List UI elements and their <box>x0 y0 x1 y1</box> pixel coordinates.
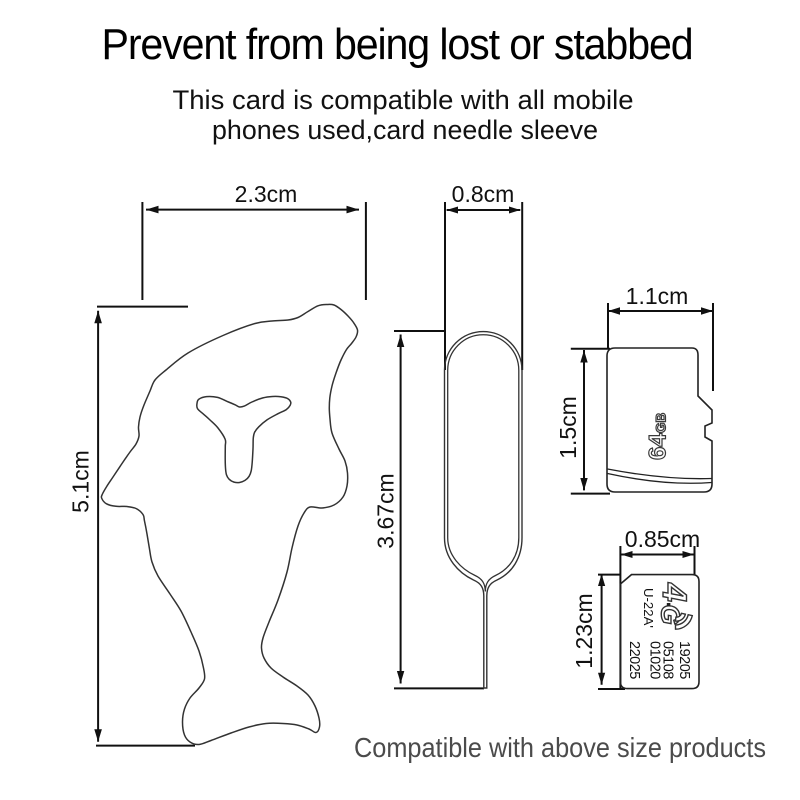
svg-text:0.85cm: 0.85cm <box>625 526 700 552</box>
svg-text:0.8cm: 0.8cm <box>452 181 515 207</box>
svg-text:Compatible with above size pro: Compatible with above size products <box>354 732 766 763</box>
svg-text:U-22A': U-22A' <box>641 588 656 628</box>
svg-text:22025: 22025 <box>626 641 642 679</box>
svg-text:This card is compatible with a: This card is compatible with all mobile <box>173 85 634 115</box>
svg-text:1.23cm: 1.23cm <box>571 593 597 668</box>
svg-text:3.67cm: 3.67cm <box>373 473 399 548</box>
svg-text:5.1cm: 5.1cm <box>68 450 94 513</box>
svg-text:64: 64 <box>645 433 672 460</box>
svg-text:phones used,card needle sleeve: phones used,card needle sleeve <box>212 115 598 145</box>
svg-text:01020: 01020 <box>647 641 663 679</box>
svg-text:19205: 19205 <box>676 641 692 679</box>
svg-text:4: 4 <box>655 582 693 602</box>
svg-text:1.5cm: 1.5cm <box>555 396 581 459</box>
svg-text:Prevent from being lost or sta: Prevent from being lost or stabbed <box>102 20 693 69</box>
svg-text:2.3cm: 2.3cm <box>235 181 298 207</box>
svg-text:GB: GB <box>654 412 669 433</box>
svg-text:1.1cm: 1.1cm <box>626 283 689 309</box>
